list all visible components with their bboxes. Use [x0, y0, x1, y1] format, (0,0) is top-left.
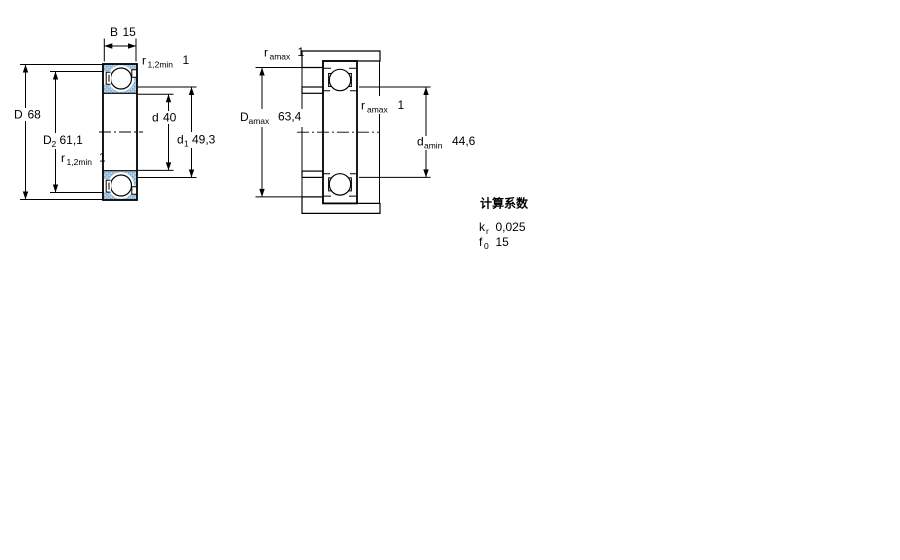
factors-title: 计算系数 — [480, 196, 529, 211]
dim-ra-top-subscript: amax — [270, 52, 292, 62]
dim-da-symbol: d — [417, 135, 424, 149]
dim-da-value: 44,6 — [452, 134, 476, 148]
raceway-groove-top — [108, 65, 134, 91]
dim-ra-mid-subscript: amax — [367, 105, 389, 115]
dim-d1-symbol: d — [177, 133, 184, 147]
left-section-view — [99, 64, 143, 200]
dim-ra-top-symbol: r — [264, 46, 268, 60]
dim-ra-mid-symbol: r — [361, 99, 365, 113]
dim-Da-subscript: amax — [249, 116, 271, 126]
dim-d-symbol: d — [152, 111, 159, 125]
dim-da-subscript: amin — [424, 141, 443, 151]
factor-f0-subscript: 0 — [484, 241, 489, 251]
factor-kr-value: 0,025 — [496, 220, 526, 234]
dim-D-symbol: D — [14, 108, 23, 122]
dim-r-top-symbol: r — [142, 54, 146, 68]
dim-Da-value: 63,4 — [278, 110, 302, 124]
dim-B-symbol: B — [110, 25, 118, 39]
dim-ra-mid-value: 1 — [398, 98, 405, 112]
factor-kr-subscript: r — [486, 226, 489, 236]
bearing-dimension-drawing-page: B 15 r 1,2min 1 D 68 D 2 61,1 r 1,2min 1… — [0, 0, 900, 560]
factor-kr-symbol: k — [479, 220, 486, 234]
bearing-drawing-svg: B 15 r 1,2min 1 D 68 D 2 61,1 r 1,2min 1… — [0, 0, 900, 560]
dim-d1-subscript: 1 — [184, 139, 189, 149]
dim-r-bottom-symbol: r — [61, 151, 65, 165]
dim-d-value: 40 — [163, 111, 177, 125]
dim-D-value: 68 — [28, 108, 42, 122]
shield-recess-top — [104, 71, 111, 84]
dim-D2-value: 61,1 — [60, 133, 84, 147]
dim-r-top-subscript: 1,2min — [148, 60, 174, 70]
dim-d1-value: 49,3 — [192, 133, 216, 147]
dim-r-bottom-value: 1 — [99, 151, 106, 165]
dim-ra-top-value: 1 — [298, 45, 305, 59]
raceway-groove-bottom — [108, 172, 134, 198]
dim-r-top-value: 1 — [183, 53, 190, 67]
shield-recess-bottom — [104, 179, 111, 192]
dim-r-bottom-subscript: 1,2min — [67, 157, 93, 167]
factor-f0-value: 15 — [496, 235, 510, 249]
dim-D2-subscript: 2 — [52, 139, 57, 149]
dim-B-value: 15 — [123, 25, 137, 39]
